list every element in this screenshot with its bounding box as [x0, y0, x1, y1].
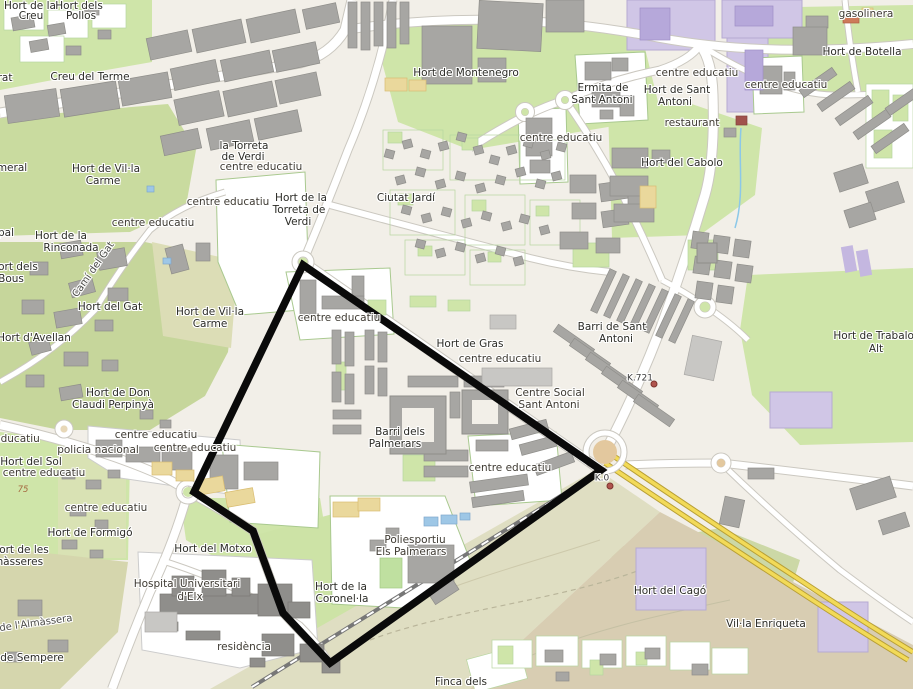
building	[374, 2, 383, 46]
building	[272, 42, 320, 73]
industrial-zone	[770, 392, 832, 428]
building	[545, 650, 563, 662]
building	[645, 648, 660, 659]
map-canvas[interactable]: Hort de laCreuHort delsPollosCreu del Te…	[0, 0, 913, 689]
building	[748, 468, 774, 479]
building	[461, 218, 472, 228]
building	[332, 372, 341, 402]
green-patch	[388, 132, 402, 143]
building	[378, 332, 387, 362]
building	[745, 50, 763, 90]
green-patch	[398, 194, 413, 205]
building	[192, 19, 246, 53]
building	[695, 281, 713, 300]
building	[482, 368, 552, 386]
building	[70, 505, 86, 516]
building	[254, 110, 302, 141]
building	[736, 116, 747, 125]
building	[539, 225, 550, 235]
building	[62, 470, 75, 479]
building	[652, 150, 670, 163]
building	[86, 480, 101, 489]
map-base-layer	[0, 0, 913, 689]
building	[174, 91, 224, 126]
building	[64, 352, 88, 366]
building	[435, 248, 446, 258]
pool	[441, 515, 457, 524]
building	[546, 0, 584, 32]
building	[48, 640, 68, 652]
green-patch	[536, 206, 549, 216]
building	[140, 410, 153, 419]
green-patch	[498, 646, 513, 664]
building	[202, 570, 226, 596]
building	[361, 2, 370, 50]
building	[126, 447, 160, 462]
building	[844, 202, 876, 228]
building	[345, 374, 354, 404]
farmland-almassera	[0, 548, 128, 689]
building	[633, 394, 674, 427]
building	[6, 652, 22, 662]
building	[402, 139, 413, 149]
building	[490, 315, 516, 329]
building	[878, 512, 909, 535]
roundabout	[717, 459, 725, 467]
building	[784, 72, 795, 90]
building	[620, 96, 634, 116]
green-patch	[380, 558, 402, 588]
building	[62, 540, 77, 549]
building	[600, 110, 613, 119]
building	[90, 550, 103, 558]
building	[596, 238, 620, 253]
courtyard	[402, 408, 434, 442]
building	[422, 26, 472, 84]
building	[400, 2, 409, 44]
building	[572, 203, 596, 219]
building	[348, 2, 357, 48]
building	[365, 366, 374, 394]
building	[506, 145, 517, 155]
sports-court	[409, 80, 426, 91]
building	[495, 175, 506, 185]
building	[186, 631, 220, 640]
sports-court	[358, 498, 380, 511]
building	[501, 221, 512, 231]
roundabout	[61, 426, 68, 433]
building	[22, 300, 44, 314]
building	[530, 160, 550, 173]
building	[560, 232, 588, 249]
building	[455, 171, 466, 181]
building	[160, 420, 171, 428]
building	[475, 183, 486, 193]
building	[640, 8, 670, 40]
roundabout	[700, 302, 710, 312]
building	[30, 262, 48, 275]
purple-building	[841, 245, 857, 273]
building	[735, 6, 773, 26]
sports-court	[333, 502, 359, 517]
pool	[147, 186, 154, 192]
building	[735, 264, 753, 283]
building	[438, 141, 449, 151]
building	[98, 30, 111, 39]
building	[684, 335, 722, 380]
building	[275, 72, 321, 104]
green-patch	[472, 200, 486, 211]
building	[478, 58, 506, 82]
building	[108, 470, 120, 478]
building	[697, 243, 717, 263]
building	[244, 462, 278, 480]
pool	[424, 517, 438, 526]
building	[556, 672, 569, 681]
building	[475, 253, 486, 263]
building	[424, 466, 468, 477]
pool	[163, 258, 171, 264]
building	[793, 27, 827, 55]
building	[435, 179, 446, 189]
building	[102, 360, 118, 371]
building	[66, 46, 81, 55]
building	[378, 368, 387, 396]
building	[302, 3, 339, 30]
building	[220, 50, 273, 82]
sports-court	[640, 186, 656, 208]
building	[570, 175, 596, 193]
building	[592, 92, 620, 107]
building	[733, 239, 751, 258]
building	[415, 239, 426, 249]
green-patch	[410, 296, 436, 307]
building	[519, 214, 530, 224]
building	[415, 167, 426, 177]
sports-court	[862, 8, 873, 16]
building	[84, 6, 99, 15]
building	[450, 392, 460, 418]
roundabout	[593, 440, 617, 464]
building	[18, 600, 42, 616]
building	[232, 578, 250, 596]
building	[333, 410, 361, 419]
building	[719, 496, 744, 528]
building	[352, 276, 364, 296]
building	[477, 0, 543, 51]
building	[196, 243, 210, 261]
building	[600, 654, 616, 665]
roundabout	[562, 97, 569, 104]
building	[612, 58, 628, 71]
building	[834, 164, 869, 192]
building	[420, 149, 431, 159]
building	[250, 658, 265, 667]
building	[262, 634, 294, 656]
building	[246, 9, 300, 43]
building	[476, 440, 508, 451]
building	[332, 330, 341, 364]
industrial-zone	[636, 548, 706, 610]
building	[843, 12, 859, 23]
building	[172, 576, 194, 596]
building	[384, 149, 395, 159]
sports-court	[152, 462, 172, 475]
green-patch	[448, 300, 470, 311]
building	[408, 376, 458, 387]
building	[421, 213, 432, 223]
building	[170, 59, 220, 90]
building	[481, 211, 492, 221]
garden-plot	[712, 648, 748, 674]
building	[395, 175, 406, 185]
roundabout	[522, 109, 529, 116]
building	[300, 280, 316, 320]
building	[386, 528, 399, 537]
building	[612, 148, 648, 168]
building	[724, 128, 736, 137]
building	[365, 330, 374, 360]
building	[146, 30, 192, 60]
building	[489, 155, 500, 165]
building	[716, 285, 734, 304]
building	[26, 375, 44, 387]
building	[370, 540, 386, 551]
building	[692, 664, 708, 675]
courtyard	[472, 400, 498, 424]
building	[333, 425, 361, 434]
building	[585, 62, 611, 80]
building	[806, 16, 828, 28]
pool	[460, 513, 470, 520]
building	[206, 120, 254, 151]
building	[223, 81, 277, 117]
building	[387, 2, 396, 48]
building	[96, 440, 122, 457]
building	[95, 320, 113, 331]
building	[288, 602, 310, 618]
sports-court	[385, 78, 407, 91]
building	[108, 288, 128, 301]
building	[441, 207, 452, 217]
building	[145, 612, 177, 632]
building	[95, 520, 108, 529]
building	[401, 205, 412, 215]
building	[118, 72, 172, 106]
sports-court	[176, 470, 194, 481]
building	[345, 332, 354, 366]
